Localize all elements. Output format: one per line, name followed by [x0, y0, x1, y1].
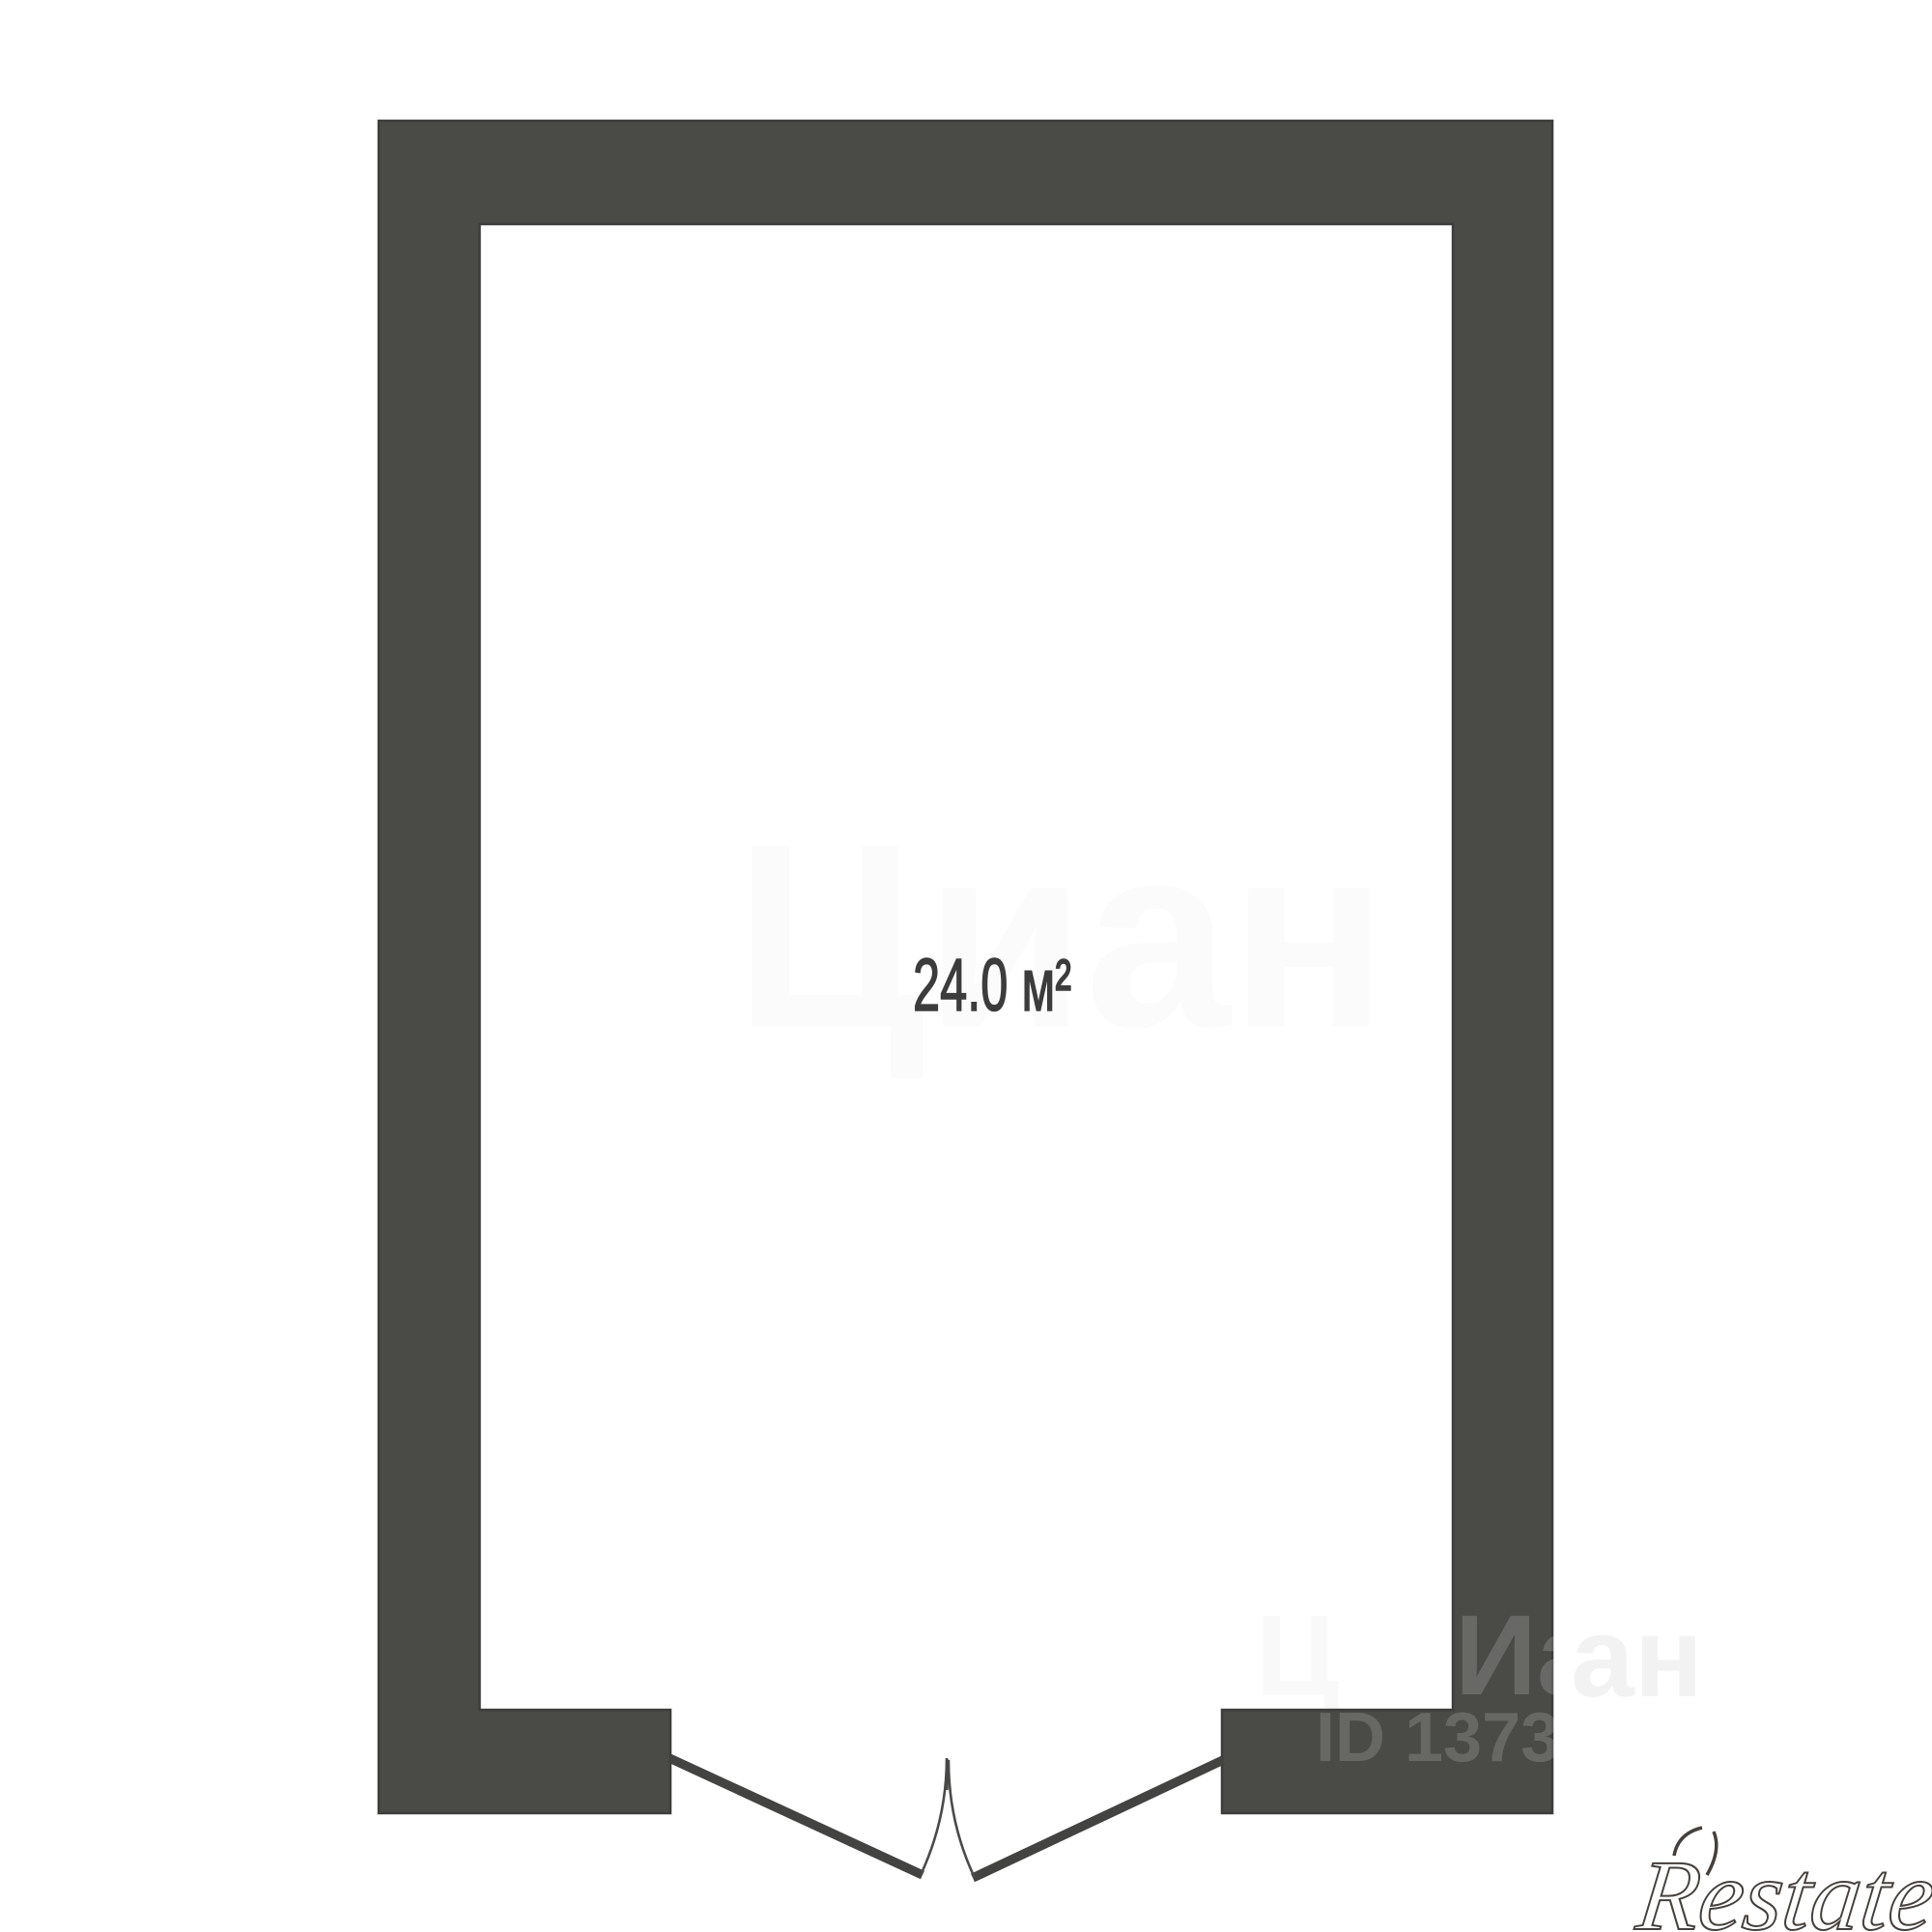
- svg-text:24.0 м²: 24.0 м²: [913, 943, 1071, 1026]
- svg-text:Restate: Restate: [1631, 1839, 1932, 1932]
- svg-text:Циан: Циан: [734, 791, 1387, 1082]
- svg-text:ID 1373: ID 1373: [1316, 1699, 1559, 1776]
- svg-text:ан: ан: [1571, 1594, 1703, 1721]
